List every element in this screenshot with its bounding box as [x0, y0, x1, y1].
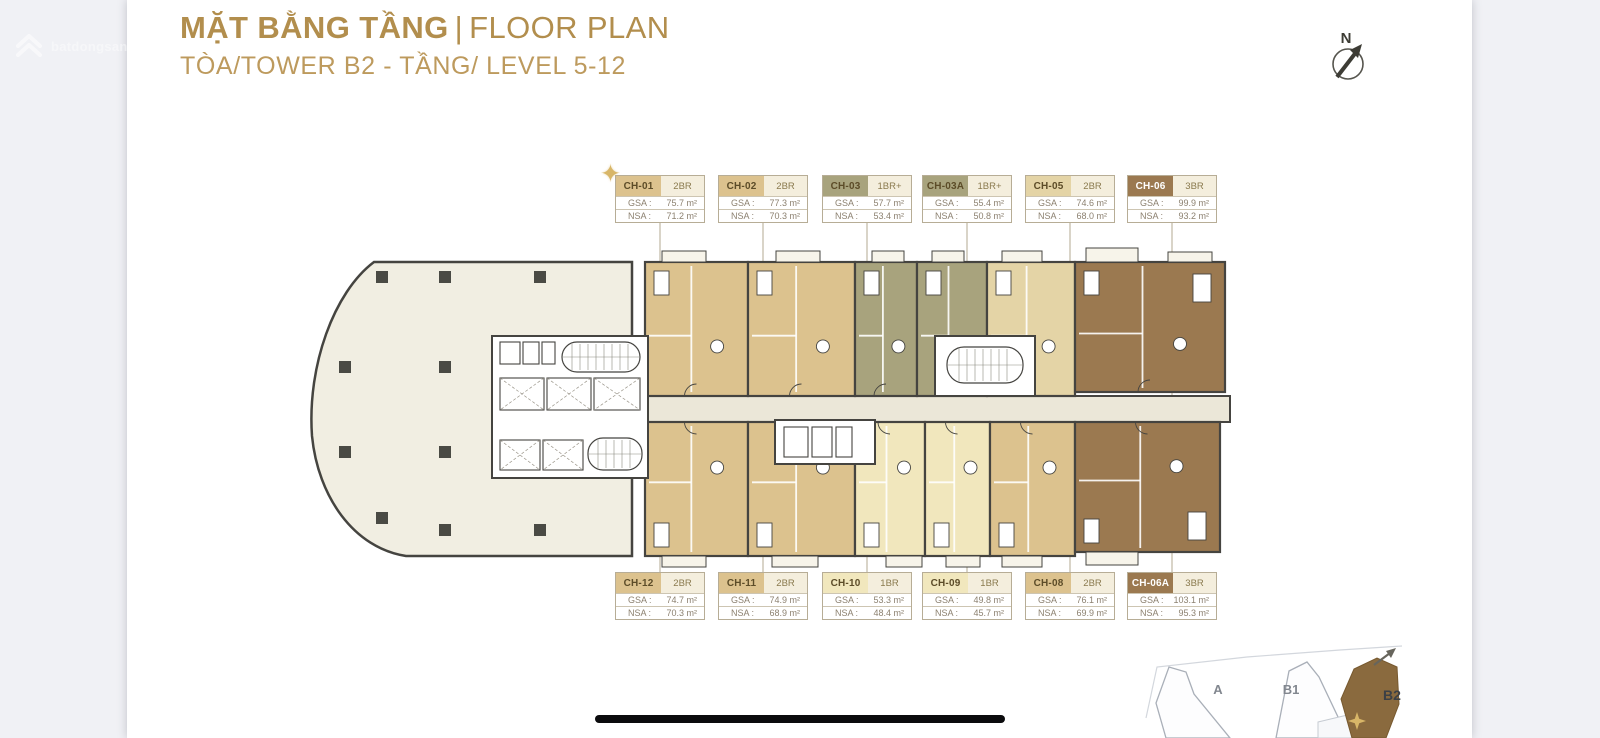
- gsa-label: GSA :: [731, 198, 755, 208]
- header: MẶT BẰNG TẦNG|FLOOR PLAN TÒA/TOWER B2 - …: [180, 10, 670, 80]
- title-vietnamese: MẶT BẰNG TẦNG: [180, 10, 449, 45]
- nsa-label: NSA :: [731, 211, 754, 221]
- unit-id-label: CH-12: [616, 573, 661, 593]
- gsa-label: GSA :: [835, 595, 859, 605]
- title-english: FLOOR PLAN: [469, 10, 669, 45]
- unit-type-label: 2BR: [1071, 176, 1114, 196]
- key-plan-tower-a: [1156, 667, 1230, 738]
- nsa-label: NSA :: [1140, 608, 1163, 618]
- watermark-text: batdongsan.com.vn: [51, 39, 179, 54]
- unit-card-header: CH-112BR: [719, 573, 807, 593]
- nsa-value: 69.9 m²: [1076, 608, 1107, 618]
- unit-card-header: CH-063BR: [1128, 176, 1216, 196]
- unit-id-label: CH-03: [823, 176, 868, 196]
- unit-type-label: 2BR: [764, 573, 807, 593]
- unit-id-label: CH-06A: [1128, 573, 1173, 593]
- gsa-label: GSA :: [1140, 595, 1164, 605]
- service-room: [775, 420, 875, 464]
- nsa-value: 93.2 m²: [1178, 211, 1209, 221]
- unit-type-label: 1BR: [868, 573, 911, 593]
- key-plan-label-a: A: [1213, 682, 1223, 697]
- unit-card-header: CH-122BR: [616, 573, 704, 593]
- unit-card-CH-06A: CH-06A3BRGSA :103.1 m²NSA :95.3 m²: [1127, 572, 1217, 620]
- key-plan-label-b2: B2: [1383, 687, 1401, 703]
- gsa-label: GSA :: [935, 198, 959, 208]
- nsa-value: 50.8 m²: [973, 211, 1004, 221]
- unit-nsa-row: NSA :45.7 m²: [923, 606, 1011, 619]
- gsa-value: 57.7 m²: [873, 198, 904, 208]
- gsa-value: 77.3 m²: [769, 198, 800, 208]
- unit-nsa-row: NSA :68.9 m²: [719, 606, 807, 619]
- compass-north-label: N: [1341, 30, 1352, 47]
- unit-id-label: CH-01: [616, 176, 661, 196]
- unit-card-CH-11: CH-112BRGSA :74.9 m²NSA :68.9 m²: [718, 572, 808, 620]
- unit-type-label: 2BR: [1071, 573, 1114, 593]
- gsa-label: GSA :: [628, 595, 652, 605]
- unit-id-label: CH-02: [719, 176, 764, 196]
- unit-nsa-row: NSA :68.0 m²: [1026, 209, 1114, 222]
- unit-gsa-row: GSA :49.8 m²: [923, 593, 1011, 606]
- unit-card-header: CH-012BR: [616, 176, 704, 196]
- nsa-label: NSA :: [628, 211, 651, 221]
- nsa-value: 53.4 m²: [873, 211, 904, 221]
- nsa-label: NSA :: [1038, 608, 1061, 618]
- unit-gsa-row: GSA :99.9 m²: [1128, 196, 1216, 209]
- gsa-value: 49.8 m²: [973, 595, 1004, 605]
- gsa-value: 99.9 m²: [1178, 198, 1209, 208]
- home-indicator[interactable]: [595, 715, 1005, 723]
- unit-gsa-row: GSA :76.1 m²: [1026, 593, 1114, 606]
- unit-id-label: CH-05: [1026, 176, 1071, 196]
- nsa-label: NSA :: [1038, 211, 1061, 221]
- unit-id-label: CH-06: [1128, 176, 1173, 196]
- nsa-label: NSA :: [628, 608, 651, 618]
- page-title: MẶT BẰNG TẦNG|FLOOR PLAN: [180, 10, 670, 46]
- unit-gsa-row: GSA :55.4 m²: [923, 196, 1011, 209]
- unit-type-label: 2BR: [661, 573, 704, 593]
- compass-needle-icon: [1337, 51, 1357, 77]
- nsa-label: NSA :: [935, 608, 958, 618]
- unit-card-header: CH-091BR: [923, 573, 1011, 593]
- unit-card-header: CH-022BR: [719, 176, 807, 196]
- unit-card-CH-12: CH-122BRGSA :74.7 m²NSA :70.3 m²: [615, 572, 705, 620]
- unit-nsa-row: NSA :70.3 m²: [616, 606, 704, 619]
- nsa-value: 68.0 m²: [1076, 211, 1107, 221]
- unit-nsa-row: NSA :95.3 m²: [1128, 606, 1216, 619]
- gsa-value: 55.4 m²: [973, 198, 1004, 208]
- unit-card-header: CH-06A3BR: [1128, 573, 1216, 593]
- gsa-label: GSA :: [1038, 198, 1062, 208]
- unit-card-CH-03: CH-031BR+GSA :57.7 m²NSA :53.4 m²: [822, 175, 912, 223]
- unit-nsa-row: NSA :48.4 m²: [823, 606, 911, 619]
- gsa-value: 74.7 m²: [666, 595, 697, 605]
- compass: N: [1333, 30, 1363, 79]
- unit-card-CH-09: CH-091BRGSA :49.8 m²NSA :45.7 m²: [922, 572, 1012, 620]
- nsa-value: 68.9 m²: [769, 608, 800, 618]
- unit-type-label: 1BR+: [968, 176, 1011, 196]
- unit-card-CH-05: CH-052BRGSA :74.6 m²NSA :68.0 m²: [1025, 175, 1115, 223]
- unit-nsa-row: NSA :69.9 m²: [1026, 606, 1114, 619]
- unit-id-label: CH-09: [923, 573, 968, 593]
- gsa-label: GSA :: [835, 198, 859, 208]
- gsa-label: GSA :: [628, 198, 652, 208]
- unit-card-header: CH-03A1BR+: [923, 176, 1011, 196]
- unit-nsa-row: NSA :71.2 m²: [616, 209, 704, 222]
- key-plan: A B1 B2: [1146, 646, 1402, 738]
- unit-gsa-row: GSA :57.7 m²: [823, 196, 911, 209]
- nsa-label: NSA :: [835, 608, 858, 618]
- unit-type-label: 2BR: [764, 176, 807, 196]
- unit-gsa-row: GSA :74.7 m²: [616, 593, 704, 606]
- gsa-value: 74.9 m²: [769, 595, 800, 605]
- unit-type-label: 3BR: [1173, 176, 1216, 196]
- unit-card-CH-03A: CH-03A1BR+GSA :55.4 m²NSA :50.8 m²: [922, 175, 1012, 223]
- central-core: [492, 336, 648, 478]
- unit-card-CH-10: CH-101BRGSA :53.3 m²NSA :48.4 m²: [822, 572, 912, 620]
- gsa-value: 53.3 m²: [873, 595, 904, 605]
- nsa-label: NSA :: [731, 608, 754, 618]
- secondary-stair-core: [935, 336, 1035, 396]
- gsa-value: 103.1 m²: [1173, 595, 1209, 605]
- nsa-value: 95.3 m²: [1178, 608, 1209, 618]
- unit-gsa-row: GSA :75.7 m²: [616, 196, 704, 209]
- nsa-value: 70.3 m²: [666, 608, 697, 618]
- unit-id-label: CH-11: [719, 573, 764, 593]
- unit-gsa-row: GSA :77.3 m²: [719, 196, 807, 209]
- unit-nsa-row: NSA :70.3 m²: [719, 209, 807, 222]
- unit-type-label: 3BR: [1173, 573, 1216, 593]
- unit-card-header: CH-031BR+: [823, 176, 911, 196]
- featured-star-icon: ✦: [600, 162, 621, 187]
- unit-id-label: CH-10: [823, 573, 868, 593]
- unit-gsa-row: GSA :103.1 m²: [1128, 593, 1216, 606]
- brand-watermark: batdongsan.com.vn: [14, 30, 179, 62]
- unit-card-CH-06: CH-063BRGSA :99.9 m²NSA :93.2 m²: [1127, 175, 1217, 223]
- gsa-value: 74.6 m²: [1076, 198, 1107, 208]
- unit-gsa-row: GSA :74.6 m²: [1026, 196, 1114, 209]
- gsa-label: GSA :: [1140, 198, 1164, 208]
- unit-id-label: CH-03A: [923, 176, 968, 196]
- nsa-value: 70.3 m²: [769, 211, 800, 221]
- unit-card-header: CH-101BR: [823, 573, 911, 593]
- page-root: { "page": {"background": "#f0f1f5", "can…: [0, 0, 1600, 738]
- unit-nsa-row: NSA :50.8 m²: [923, 209, 1011, 222]
- unit-type-label: 1BR: [968, 573, 1011, 593]
- gsa-value: 76.1 m²: [1076, 595, 1107, 605]
- central-corridor: [632, 396, 1230, 422]
- nsa-label: NSA :: [1140, 211, 1163, 221]
- nsa-label: NSA :: [935, 211, 958, 221]
- unit-type-label: 2BR: [661, 176, 704, 196]
- unit-card-header: CH-082BR: [1026, 573, 1114, 593]
- nsa-value: 48.4 m²: [873, 608, 904, 618]
- unit-gsa-row: GSA :53.3 m²: [823, 593, 911, 606]
- unit-gsa-row: GSA :74.9 m²: [719, 593, 807, 606]
- gsa-label: GSA :: [935, 595, 959, 605]
- gsa-value: 75.7 m²: [666, 198, 697, 208]
- nsa-value: 71.2 m²: [666, 211, 697, 221]
- gsa-label: GSA :: [731, 595, 755, 605]
- gsa-label: GSA :: [1038, 595, 1062, 605]
- brand-chevron-logo-icon: [14, 30, 44, 62]
- unit-type-label: 1BR+: [868, 176, 911, 196]
- page-subtitle: TÒA/TOWER B2 - TẦNG/ LEVEL 5-12: [180, 52, 670, 80]
- title-separator: |: [449, 10, 469, 45]
- unit-id-label: CH-08: [1026, 573, 1071, 593]
- key-plan-label-b1: B1: [1283, 682, 1300, 697]
- unit-card-CH-01: CH-012BRGSA :75.7 m²NSA :71.2 m²✦: [615, 175, 705, 223]
- nsa-label: NSA :: [835, 211, 858, 221]
- unit-nsa-row: NSA :93.2 m²: [1128, 209, 1216, 222]
- unit-card-CH-08: CH-082BRGSA :76.1 m²NSA :69.9 m²: [1025, 572, 1115, 620]
- unit-nsa-row: NSA :53.4 m²: [823, 209, 911, 222]
- unit-card-CH-02: CH-022BRGSA :77.3 m²NSA :70.3 m²: [718, 175, 808, 223]
- floor-plan-drawing: A B1 B2 N: [0, 0, 1600, 738]
- unit-card-header: CH-052BR: [1026, 176, 1114, 196]
- nsa-value: 45.7 m²: [973, 608, 1004, 618]
